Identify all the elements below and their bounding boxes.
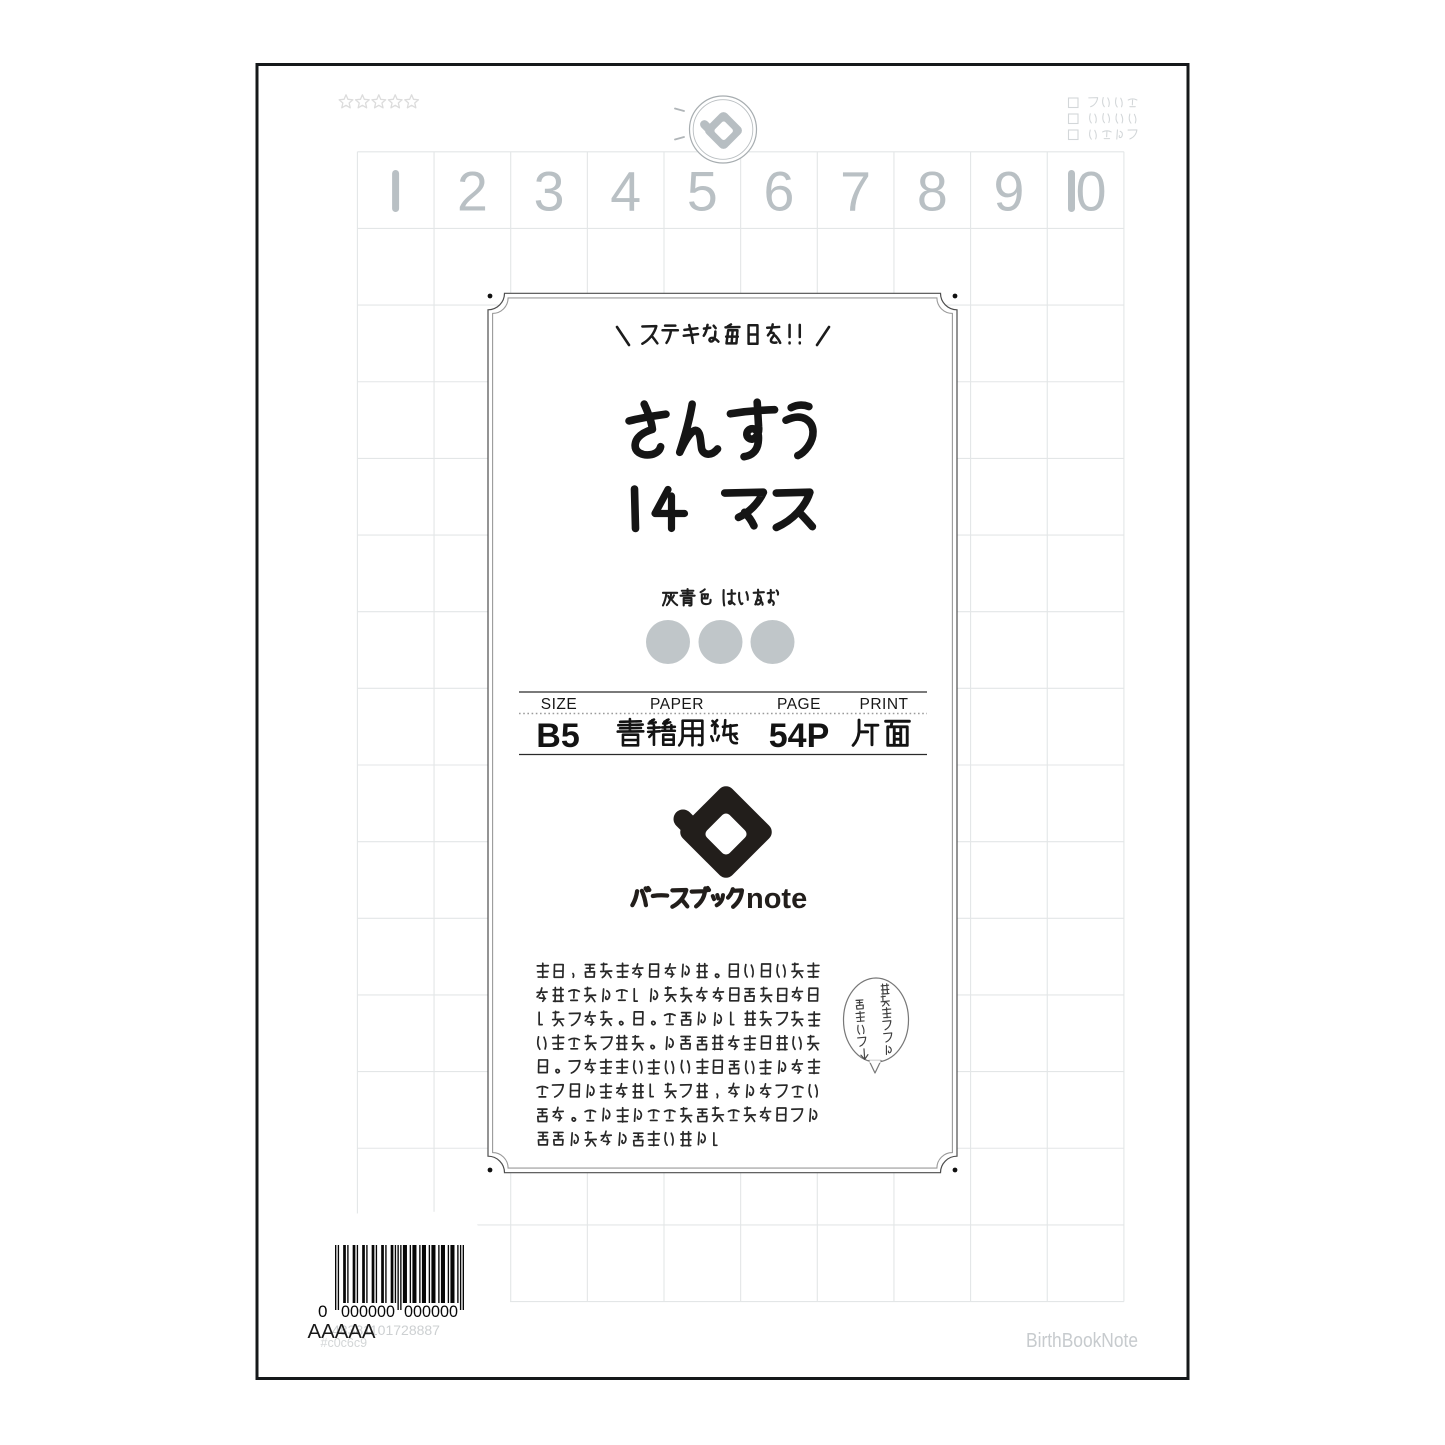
svg-text:2: 2 xyxy=(457,161,488,223)
svg-text:5: 5 xyxy=(687,161,718,223)
svg-text:PRINT: PRINT xyxy=(860,696,909,713)
svg-text:0: 0 xyxy=(318,1302,327,1321)
svg-text:7: 7 xyxy=(840,161,871,223)
svg-text:000000: 000000 xyxy=(341,1302,395,1321)
svg-text:6: 6 xyxy=(764,161,795,223)
svg-text:9: 9 xyxy=(993,161,1024,223)
svg-text:B5: B5 xyxy=(536,717,579,755)
svg-text:54P: 54P xyxy=(769,717,830,755)
svg-text:8: 8 xyxy=(917,161,948,223)
svg-text:PAPER: PAPER xyxy=(650,696,704,713)
svg-text:4: 4 xyxy=(610,161,641,223)
svg-text:#c0c6c9: #c0c6c9 xyxy=(321,1336,368,1350)
svg-text:3: 3 xyxy=(534,161,565,223)
svg-text:SIZE: SIZE xyxy=(541,696,577,713)
svg-text:0: 0 xyxy=(1076,161,1107,223)
svg-text:000000: 000000 xyxy=(404,1302,458,1321)
svg-text:note: note xyxy=(746,883,807,915)
svg-text:PAGE: PAGE xyxy=(777,696,821,713)
svg-text:BirthBookNote: BirthBookNote xyxy=(1026,1330,1138,1352)
